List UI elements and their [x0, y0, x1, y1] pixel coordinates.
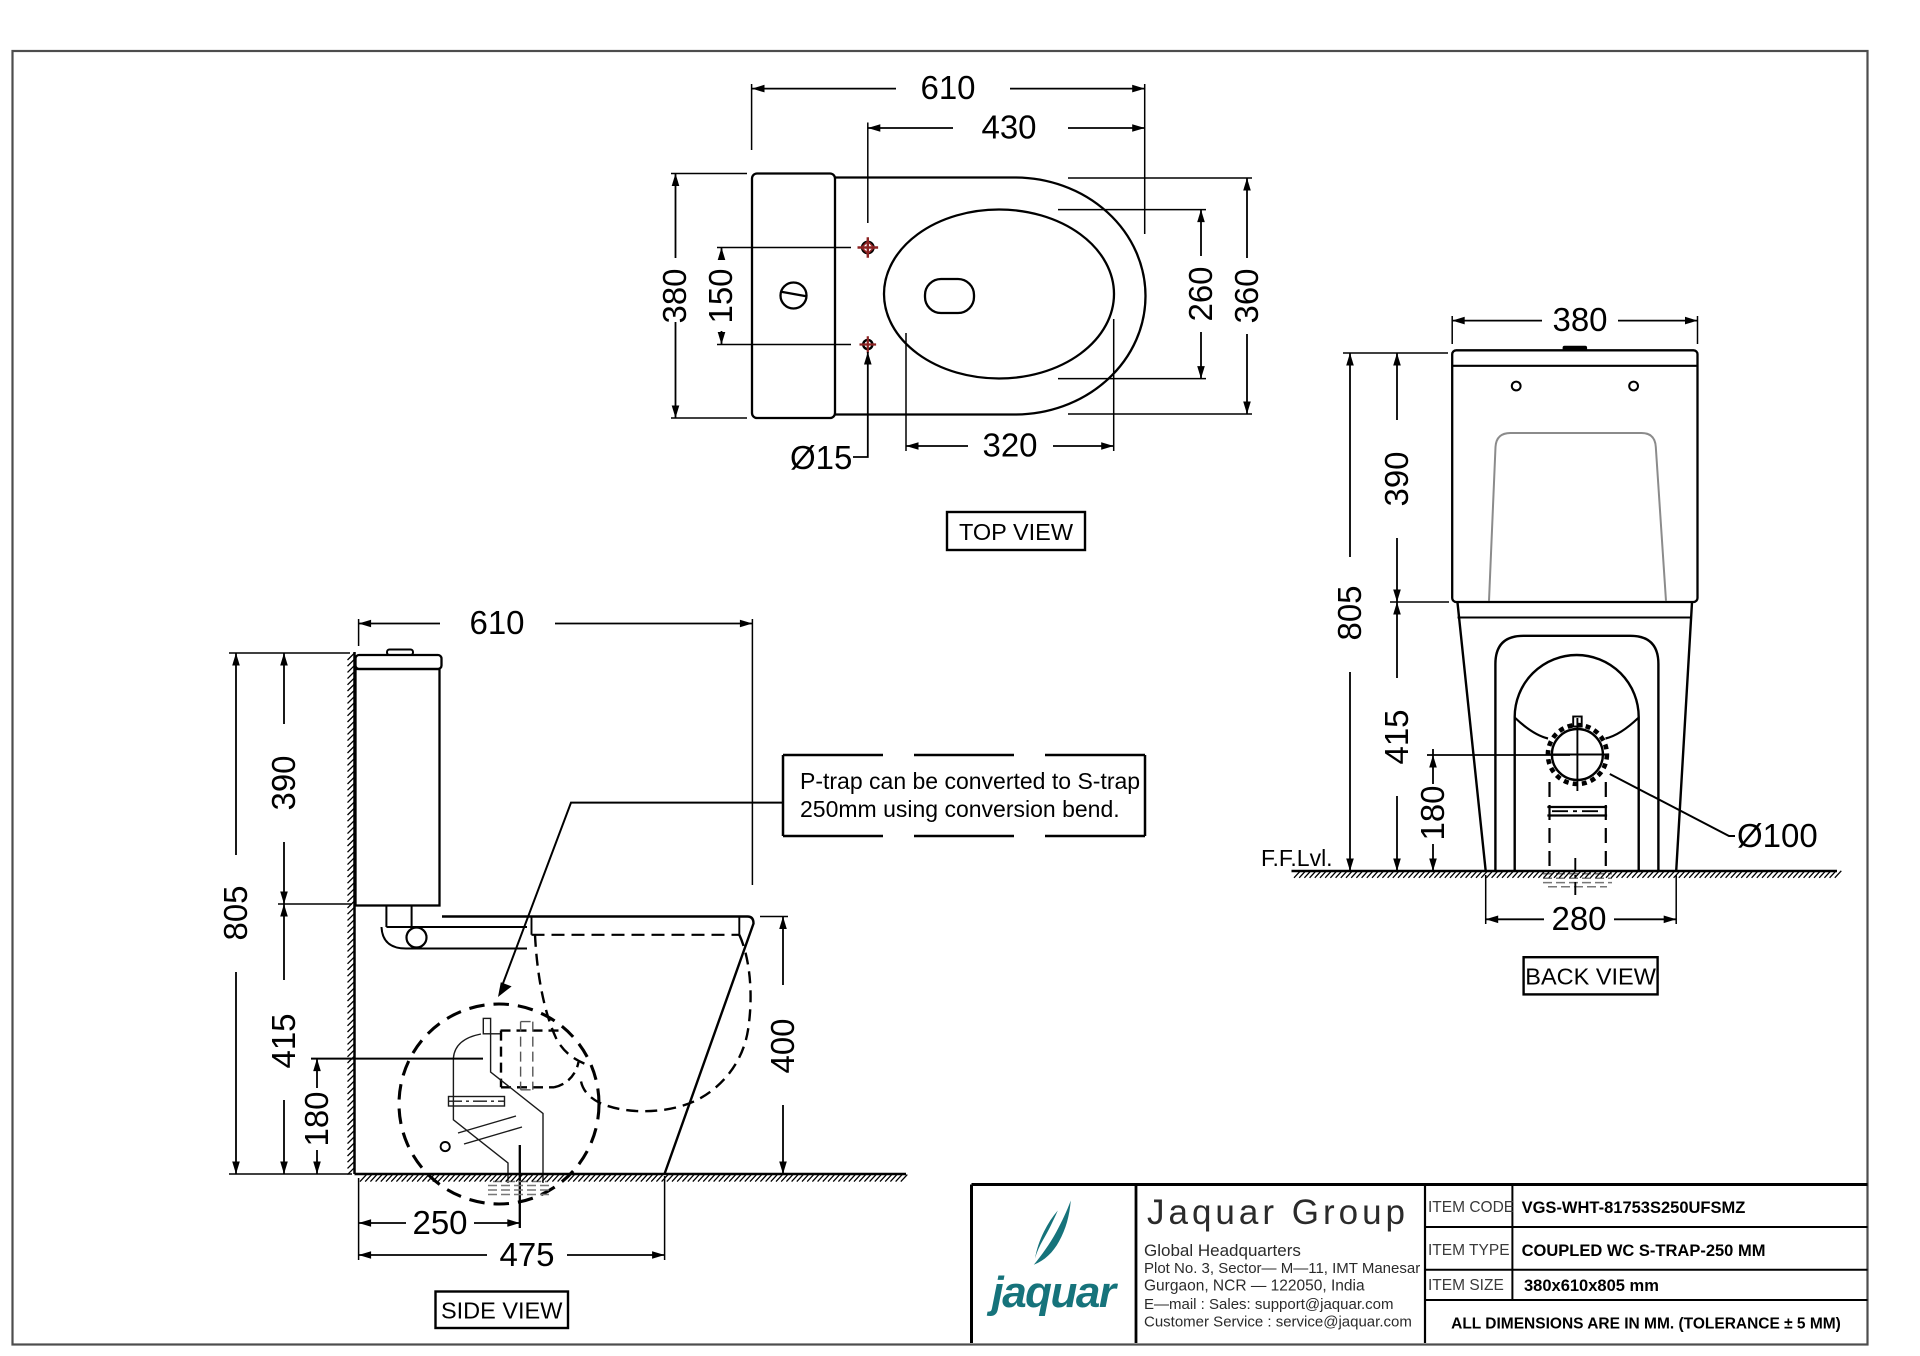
svg-text:Ø100: Ø100: [1737, 817, 1818, 854]
svg-text:610: 610: [469, 604, 524, 641]
svg-text:805: 805: [217, 885, 254, 940]
svg-text:ALL DIMENSIONS ARE IN MM. (TOL: ALL DIMENSIONS ARE IN MM. (TOLERANCE ± 5…: [1451, 1316, 1841, 1333]
svg-text:415: 415: [1378, 709, 1415, 764]
svg-text:180: 180: [298, 1091, 335, 1146]
svg-text:390: 390: [265, 755, 302, 810]
svg-text:380x610x805 mm: 380x610x805 mm: [1524, 1277, 1659, 1295]
svg-text:250: 250: [412, 1204, 467, 1241]
svg-text:jaquar: jaquar: [986, 1268, 1118, 1317]
svg-text:250mm using conversion bend.: 250mm using conversion bend.: [800, 796, 1120, 822]
svg-text:320: 320: [982, 427, 1037, 464]
svg-text:SIDE VIEW: SIDE VIEW: [441, 1298, 563, 1324]
svg-text:260: 260: [1182, 266, 1219, 321]
svg-text:P-trap can be converted to S-t: P-trap can be converted to S-trap: [800, 768, 1140, 794]
svg-text:Gurgaon, NCR — 122050, India: Gurgaon, NCR — 122050, India: [1144, 1278, 1365, 1295]
svg-text:VGS-WHT-81753S250UFSMZ: VGS-WHT-81753S250UFSMZ: [1522, 1199, 1746, 1217]
svg-text:380: 380: [656, 268, 693, 323]
svg-text:E—mail : Sales: support@jaquar: E—mail : Sales: support@jaquar.com: [1144, 1296, 1394, 1313]
svg-text:F.F.Lvl.: F.F.Lvl.: [1261, 845, 1333, 871]
svg-text:ITEM TYPE: ITEM TYPE: [1428, 1242, 1510, 1259]
svg-text:415: 415: [265, 1013, 302, 1068]
svg-text:430: 430: [981, 109, 1036, 146]
svg-text:Plot No. 3, Sector— M—11, IMT: Plot No. 3, Sector— M—11, IMT Manesar: [1144, 1260, 1420, 1277]
svg-text:610: 610: [920, 69, 975, 106]
svg-text:380: 380: [1552, 301, 1607, 338]
svg-text:COUPLED WC S-TRAP-250 MM: COUPLED WC S-TRAP-250 MM: [1522, 1242, 1766, 1260]
svg-text:BACK VIEW: BACK VIEW: [1525, 964, 1656, 990]
svg-text:TOP VIEW: TOP VIEW: [959, 519, 1074, 545]
svg-text:Global Headquarters: Global Headquarters: [1144, 1241, 1301, 1260]
svg-text:475: 475: [499, 1236, 554, 1273]
svg-text:Jaquar Group: Jaquar Group: [1147, 1193, 1409, 1232]
svg-text:150: 150: [702, 268, 739, 323]
svg-text:180: 180: [1414, 785, 1451, 840]
svg-text:400: 400: [764, 1018, 801, 1073]
svg-text:805: 805: [1331, 585, 1368, 640]
svg-text:390: 390: [1378, 451, 1415, 506]
svg-text:Ø15: Ø15: [790, 439, 852, 476]
svg-text:360: 360: [1228, 268, 1265, 323]
svg-text:280: 280: [1551, 900, 1606, 937]
svg-text:ITEM CODE: ITEM CODE: [1428, 1199, 1514, 1216]
svg-text:ITEM SIZE: ITEM SIZE: [1428, 1277, 1504, 1294]
svg-text:Customer Service : service@jaq: Customer Service : service@jaquar.com: [1144, 1314, 1412, 1331]
